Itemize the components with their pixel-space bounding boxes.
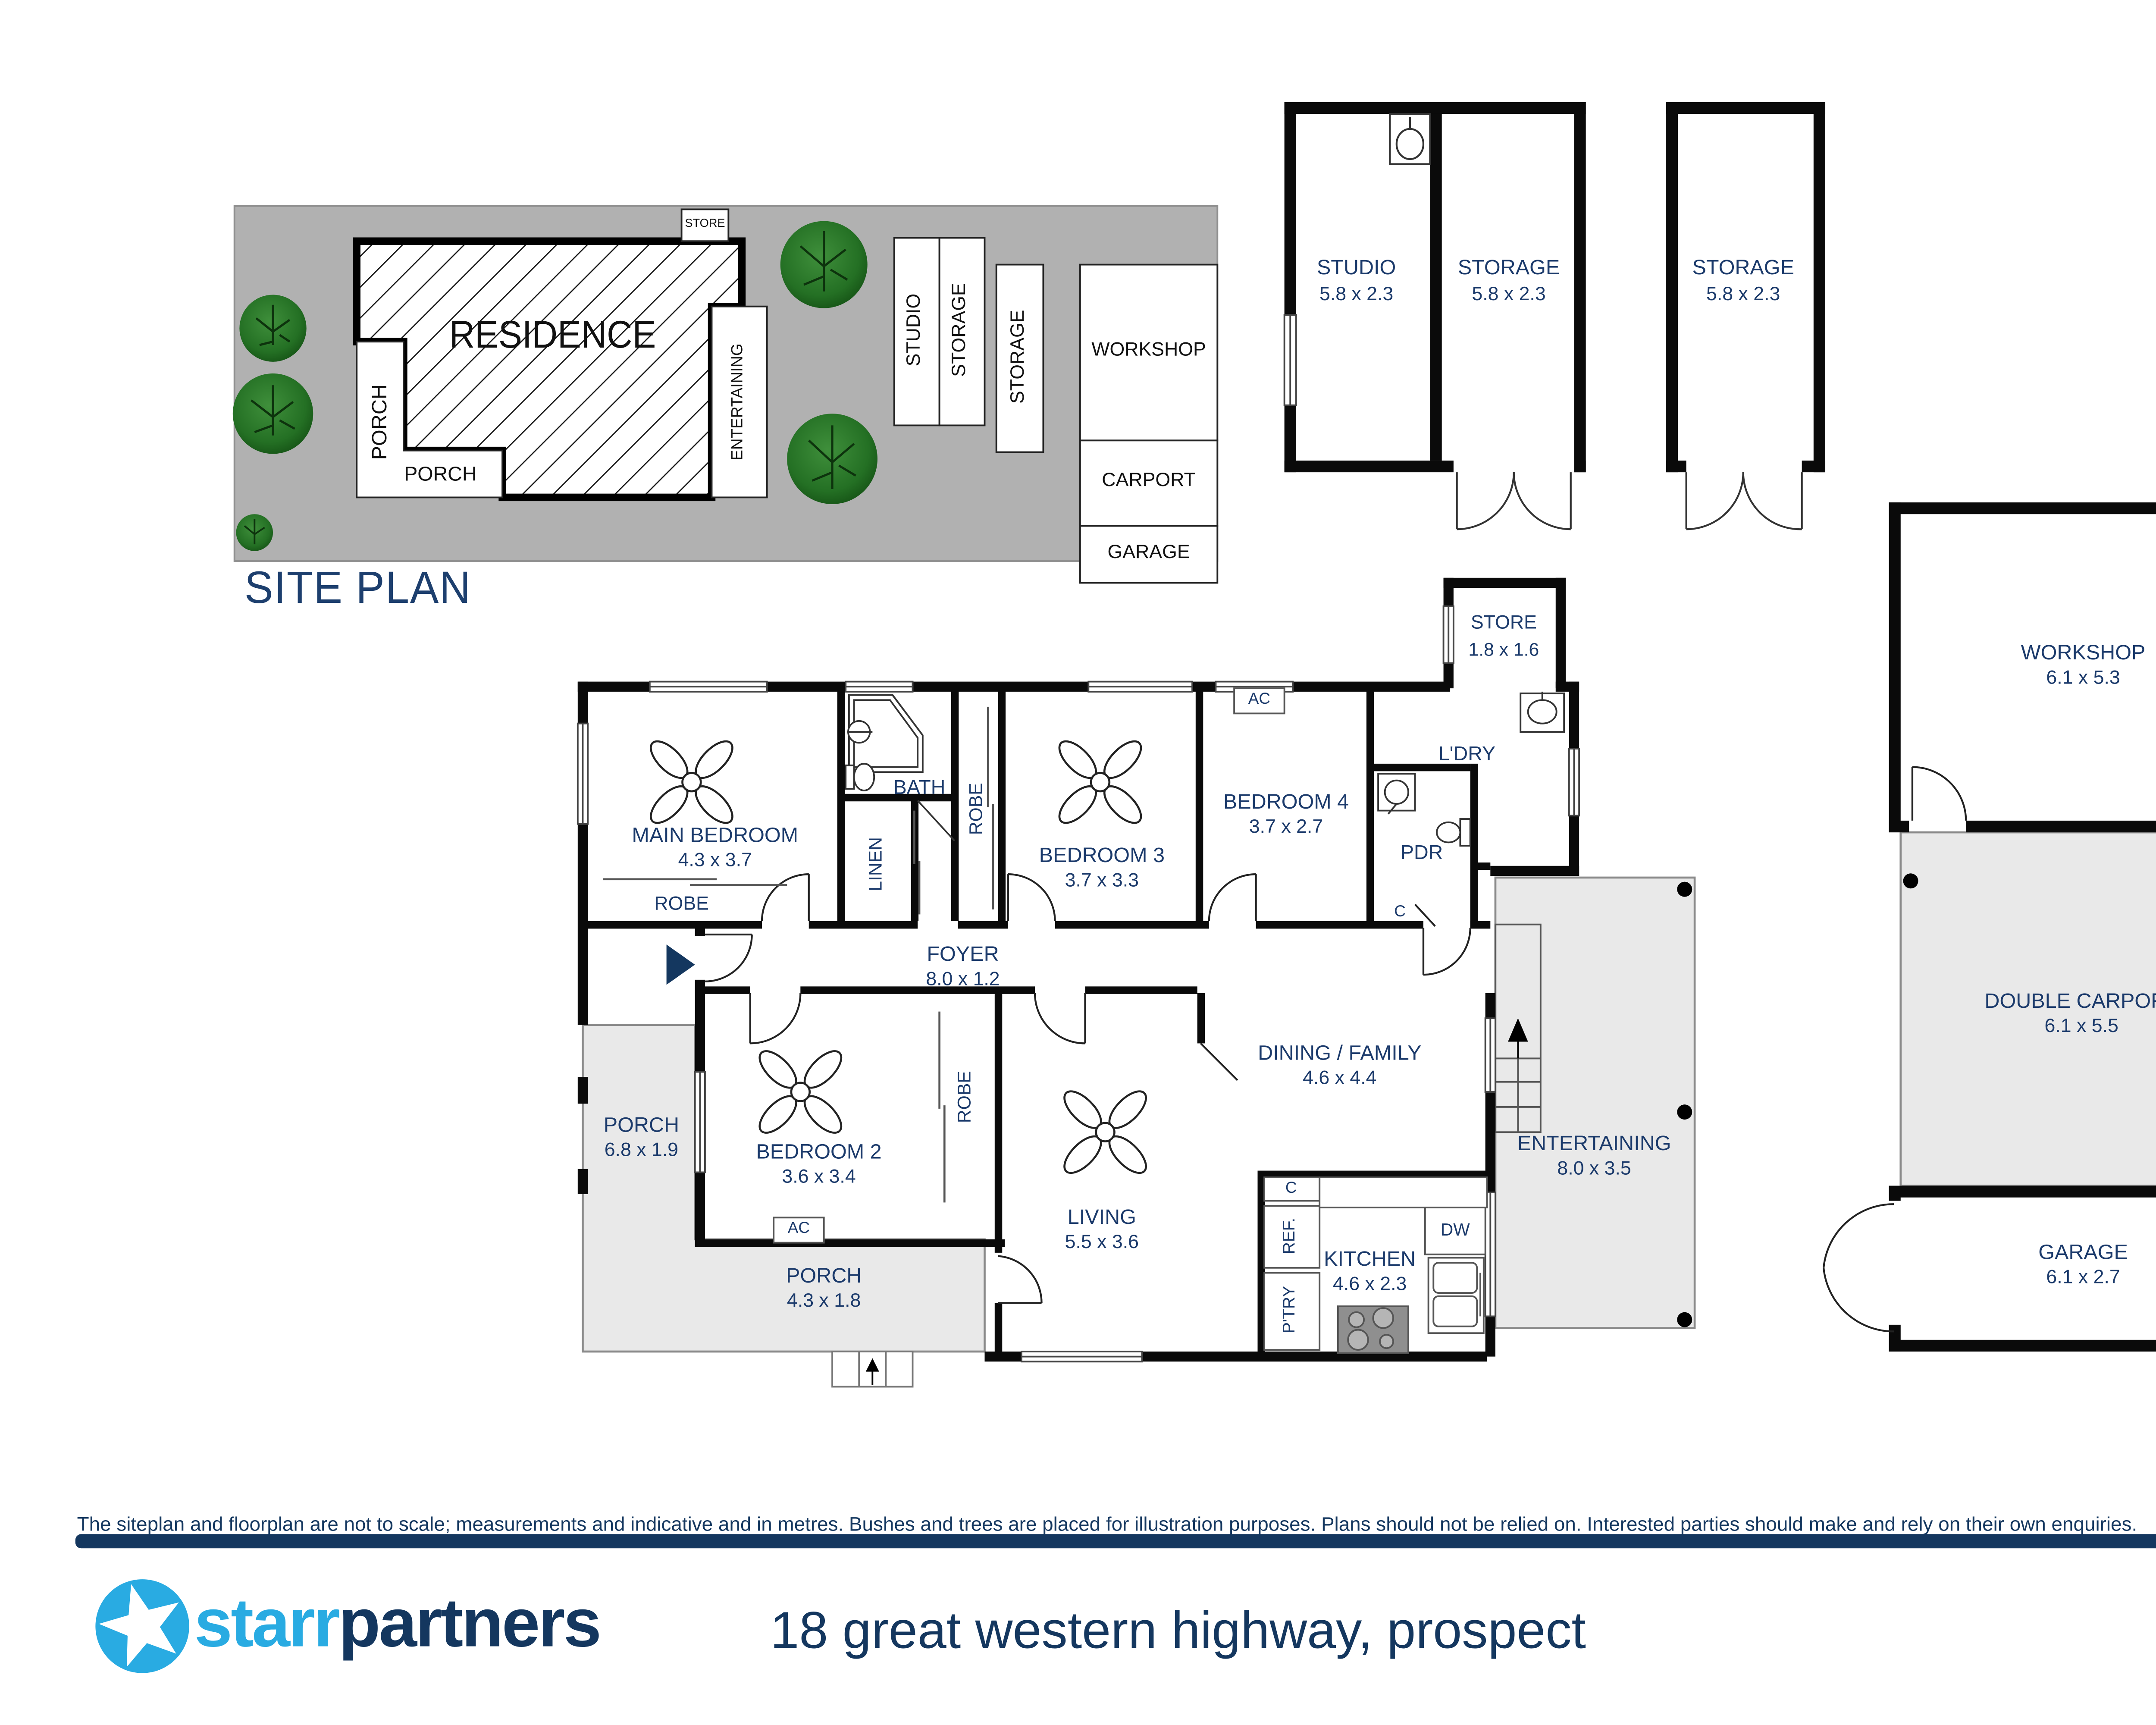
- main-bedroom-label: MAIN BEDROOM: [632, 825, 798, 847]
- porch-front-label: PORCH: [786, 1266, 862, 1287]
- bedroom2-dims: 3.6 x 3.4: [782, 1170, 856, 1189]
- carport-label: DOUBLE CARPORT: [1984, 991, 2156, 1012]
- site-storage-b-label: STORAGE: [1010, 310, 1030, 404]
- living-dims: 5.5 x 3.6: [1065, 1235, 1139, 1254]
- bath-label: BATH: [893, 777, 946, 797]
- site-store-label: STORE: [685, 219, 725, 230]
- powder-fixtures: [1378, 774, 1470, 846]
- site-carport-label: CARPORT: [1102, 473, 1196, 492]
- starr-partners-logo: starrpartners: [194, 1584, 600, 1663]
- dining-dims: 4.6 x 4.4: [1303, 1071, 1376, 1090]
- porch-side-dims: 6.8 x 1.9: [605, 1143, 678, 1162]
- bedroom3-dims: 3.7 x 3.3: [1065, 873, 1139, 892]
- double-door-icon: [1686, 472, 1802, 529]
- studio-label: STUDIO: [1317, 257, 1396, 279]
- divider-bar: [75, 1534, 2156, 1548]
- entertaining-label: ENTERTAINING: [1517, 1133, 1671, 1154]
- tree-icon: [239, 295, 306, 361]
- living-label: LIVING: [1068, 1207, 1136, 1228]
- site-garage-label: GARAGE: [1108, 545, 1190, 564]
- property-address: 18 great western highway, prospect: [770, 1601, 1586, 1662]
- brand-starr: starr: [194, 1584, 338, 1662]
- main-bedroom-dims: 4.3 x 3.7: [678, 853, 752, 872]
- studio-dims: 5.8 x 2.3: [1319, 287, 1393, 306]
- storage-a-label: STORAGE: [1458, 257, 1560, 279]
- tree-icon: [233, 373, 313, 454]
- powder-label: PDR: [1401, 842, 1443, 862]
- outbuilding-studio-storage: [1285, 102, 1586, 529]
- bedroom4-label: BEDROOM 4: [1223, 792, 1349, 813]
- storage-a-dims: 5.8 x 2.3: [1472, 287, 1545, 306]
- tree-icon: [236, 514, 273, 551]
- porch-steps: [832, 1352, 912, 1387]
- carport-post: [1903, 873, 1918, 888]
- dining-label: DINING / FAMILY: [1258, 1043, 1421, 1064]
- disclaimer-text: The siteplan and floorplan are not to sc…: [77, 1512, 2156, 1536]
- entertaining-deck: [1495, 878, 1695, 1328]
- robe-main-label: ROBE: [654, 897, 709, 916]
- garage-dims: 6.1 x 2.7: [2046, 1270, 2120, 1289]
- garage-label: GARAGE: [2038, 1242, 2128, 1264]
- brand-partners: partners: [338, 1584, 600, 1662]
- laundry-label: L'DRY: [1438, 743, 1495, 764]
- robe-hall-label: ROBE: [969, 783, 987, 835]
- site-workshop-label: WORKSHOP: [1091, 342, 1206, 361]
- floorplan-sheet: RESIDENCE PORCH PORCH ENTERTAINING STORE…: [0, 0, 2156, 1725]
- porch-side-label: PORCH: [604, 1115, 679, 1136]
- bedroom2-label: BEDROOM 2: [756, 1142, 881, 1163]
- site-porch-bottom-label: PORCH: [404, 464, 476, 484]
- laundry-fixtures: [1520, 692, 1564, 732]
- workshop-label: WORKSHOP: [2021, 643, 2146, 664]
- bedroom3-label: BEDROOM 3: [1039, 845, 1165, 866]
- plan-canvas: RESIDENCE PORCH PORCH ENTERTAINING STORE…: [0, 0, 2156, 1725]
- kitchen-dims: 4.6 x 2.3: [1333, 1276, 1407, 1296]
- storage-b-label: STORAGE: [1692, 257, 1794, 279]
- robe-bed2-label: ROBE: [957, 1071, 975, 1123]
- ac-bed2-label: AC: [788, 1221, 810, 1237]
- cupboard-hall-label: C: [1394, 905, 1406, 921]
- bedroom4-dims: 3.7 x 2.7: [1249, 819, 1323, 839]
- foyer-label: FOYER: [927, 944, 999, 965]
- starr-partners-logo-icon: [95, 1579, 189, 1673]
- site-studio-label: STUDIO: [906, 294, 926, 367]
- store-label: STORE: [1471, 615, 1537, 634]
- entry-arrow-icon: [667, 944, 695, 985]
- bath-nib-wall: [918, 800, 954, 841]
- workshop-dims: 6.1 x 5.3: [2046, 670, 2120, 690]
- site-porch-left-label: PORCH: [370, 384, 391, 460]
- site-plan-title: SITE PLAN: [244, 563, 471, 615]
- entertaining-dims: 8.0 x 3.5: [1557, 1161, 1631, 1180]
- store-dims: 1.8 x 1.6: [1468, 642, 1539, 661]
- foyer-dims: 8.0 x 1.2: [926, 972, 1000, 991]
- deck-posts: [1677, 873, 1918, 1327]
- double-door-icon: [1457, 472, 1571, 529]
- storage-b-dims: 5.8 x 2.3: [1706, 287, 1780, 306]
- dishwasher-label: DW: [1441, 1222, 1470, 1240]
- kitchen-label: KITCHEN: [1324, 1249, 1416, 1270]
- outbuilding-storage: [1666, 102, 1825, 529]
- cupboard-kitchen-label: C: [1285, 1181, 1297, 1197]
- linen-label: LINEN: [868, 837, 887, 891]
- carport-dims: 6.1 x 5.5: [2045, 1019, 2118, 1038]
- tree-icon: [787, 414, 877, 504]
- ac-bed4-label: AC: [1248, 692, 1270, 708]
- site-storage-a-label: STORAGE: [952, 283, 971, 377]
- tree-icon: [780, 221, 868, 308]
- pantry-label: P'TRY: [1283, 1286, 1300, 1333]
- site-residence-label: RESIDENCE: [449, 316, 656, 354]
- site-entertaining-label: ENTERTAINING: [730, 343, 746, 460]
- porch-front-dims: 4.3 x 1.8: [787, 1293, 861, 1313]
- fridge-label: REF.: [1283, 1218, 1300, 1254]
